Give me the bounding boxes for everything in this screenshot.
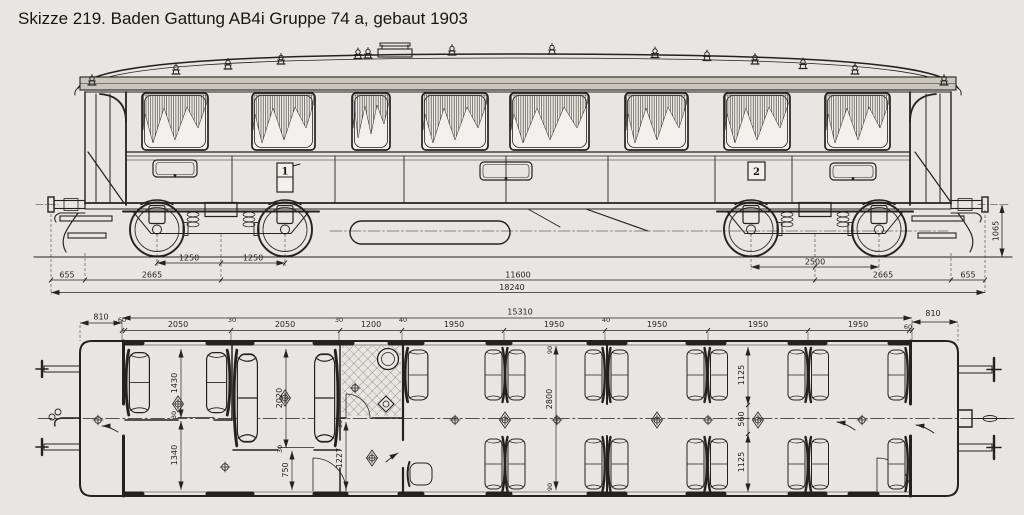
dim-overhang-right: 655: [960, 271, 975, 280]
dim-top-10: 1950: [647, 320, 667, 329]
dim-plan-interior-length: 15310: [507, 308, 532, 317]
dim-axle-b: 1250: [243, 254, 263, 263]
window: [510, 93, 589, 150]
floor-plan-view: [36, 341, 1014, 496]
underframe-equipment: [330, 209, 948, 244]
dim-top-2: 30: [228, 316, 236, 324]
window: [422, 93, 488, 150]
dim-top-3: 2050: [275, 320, 295, 329]
dim-door: 750: [281, 462, 290, 477]
dim-axle-a: 1250: [179, 254, 199, 263]
brake-hose: [958, 213, 973, 252]
window-band: [142, 93, 890, 150]
dim-top-8: 1950: [544, 320, 564, 329]
left-buffer: [36, 197, 85, 252]
window: [252, 93, 315, 150]
saloon-seats-top: [405, 348, 908, 402]
dim-length-over-buffers: 18240: [499, 283, 524, 292]
dim-wall-a: 30: [170, 411, 178, 419]
dim-wall-top: 90: [546, 346, 554, 354]
dim-top-4: 30: [335, 316, 343, 324]
carriage-drawing: Skizze 219. Baden Gattung AB4i Gruppe 74…: [0, 0, 1024, 515]
roof: [75, 54, 961, 95]
dim-top-13: 60: [904, 323, 912, 331]
dim-wall-b: 30: [276, 445, 284, 453]
class-markings: [277, 162, 765, 192]
plan-left-coupling: [36, 361, 80, 455]
dim-top-11: 1950: [748, 320, 768, 329]
window: [625, 93, 688, 150]
second-class-number: 2: [753, 167, 760, 178]
dim-top-7: 1950: [444, 320, 464, 329]
window: [724, 93, 790, 150]
dim-seat-top: 1125: [737, 365, 746, 385]
left-end-platform: [88, 94, 126, 203]
dim-vestibule: 1227: [335, 448, 344, 468]
window: [352, 93, 390, 150]
elevation-dimensions: 1250 1250 2500 655 2665 11600 2665 655 1…: [49, 205, 1002, 296]
dim-pivot-distance: 11600: [505, 271, 530, 280]
dim-aisle: 560: [737, 411, 746, 426]
scanned-drawing-page: Skizze 219. Baden Gattung AB4i Gruppe 74…: [0, 0, 1024, 515]
dim-overhang-left: 655: [59, 271, 74, 280]
side-elevation-view: 1 2: [34, 43, 1012, 257]
dim-comp1: 1430: [170, 373, 179, 393]
right-end-platform: [910, 94, 950, 203]
dim-corridor: 1340: [170, 445, 179, 465]
dim-buffer-height: 1065: [992, 221, 1001, 241]
plan-right-coupling: [958, 358, 1006, 459]
toilet-area: [342, 346, 401, 416]
dim-seat-bottom: 1125: [737, 452, 746, 472]
page-title: Skizze 219. Baden Gattung AB4i Gruppe 74…: [18, 9, 468, 28]
dim-top-1: 2050: [168, 320, 188, 329]
first-class-number: 1: [282, 167, 289, 178]
dim-wall-c: 30: [336, 420, 344, 428]
saloon-seats-bottom: [408, 437, 908, 491]
dim-plan-overhang-left: 810: [93, 313, 108, 322]
dim-plan-overhang-right: 810: [925, 309, 940, 318]
window: [142, 93, 208, 150]
dim-wall-bottom: 90: [546, 483, 554, 491]
dim-pivot-right: 2665: [873, 271, 893, 280]
name-boards: [153, 160, 876, 180]
dim-comp2: 2020: [275, 388, 284, 408]
dim-top-0: 60: [118, 316, 126, 324]
washbasin: [378, 349, 399, 370]
dim-body-width: 2800: [545, 389, 554, 409]
dim-top-12: 1950: [848, 320, 868, 329]
window: [825, 93, 890, 150]
gas-tank: [350, 221, 510, 244]
dim-bogie-wheelbase: 2500: [805, 258, 825, 267]
dim-top-5: 1200: [361, 320, 381, 329]
dim-top-9: 40: [602, 316, 610, 324]
dim-top-6: 40: [399, 316, 407, 324]
dim-pivot-left: 2665: [142, 271, 162, 280]
